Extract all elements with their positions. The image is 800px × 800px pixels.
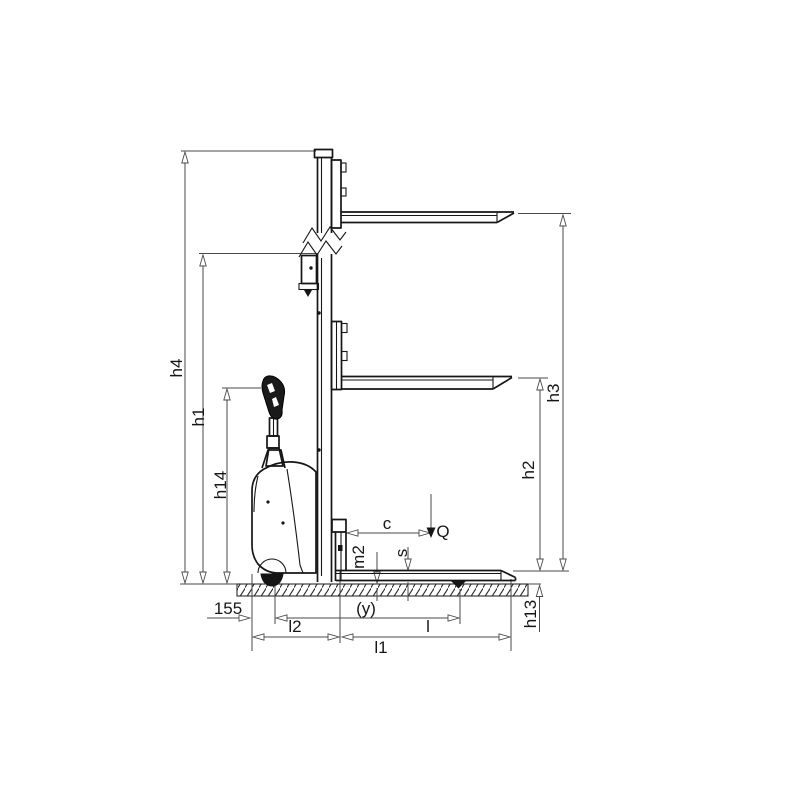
fork-middle: [332, 322, 513, 390]
mast: [299, 150, 346, 583]
stacker-dimension-diagram: h4 h1 h14 h3 h2 h13 m2 s c Q 155 (y) l2 …: [0, 0, 800, 800]
mast-top-cap: [315, 150, 333, 158]
dim-label-h1: h1: [189, 408, 208, 427]
dim-label-c: c: [383, 514, 392, 533]
tiller-joint: [267, 436, 279, 448]
dimension-arrowheads: [182, 152, 566, 640]
dimension-lines: [185, 152, 563, 637]
dim-label-155: 155: [214, 599, 242, 618]
ground: [180, 584, 541, 596]
dim-label-y: (y): [356, 599, 376, 618]
tiller-handle-head: [262, 376, 285, 419]
mast-bracket: [302, 256, 317, 284]
dim-label-h3: h3: [544, 384, 563, 403]
chassis-outline: [252, 462, 316, 573]
dim-label-l2: l2: [288, 617, 301, 636]
diagram-canvas: h4 h1 h14 h3 h2 h13 m2 s c Q 155 (y) l2 …: [0, 0, 800, 800]
dim-label-m2: m2: [349, 545, 368, 569]
mast-break-mark-lower: [299, 241, 342, 257]
dim-label-h13: h13: [521, 600, 540, 628]
dimension-labels: h4 h1 h14 h3 h2 h13 m2 s c Q 155 (y) l2 …: [167, 359, 563, 657]
upper-carriage-plate: [332, 160, 342, 228]
fork-top-raised: [341, 212, 514, 223]
dim-label-l: l: [426, 617, 430, 636]
truck-body: [252, 462, 316, 586]
dim-label-h14: h14: [211, 471, 230, 499]
dim-label-s: s: [392, 549, 411, 558]
ground-hatch-band: [237, 584, 528, 596]
dim-label-Q: Q: [436, 522, 449, 541]
mast-break-mark-upper: [303, 227, 346, 243]
tiller: [262, 376, 285, 468]
wheel-arch: [258, 559, 286, 573]
dim-label-l1: l1: [374, 638, 387, 657]
dim-label-h2: h2: [519, 461, 538, 480]
dim-label-h4: h4: [167, 359, 186, 378]
